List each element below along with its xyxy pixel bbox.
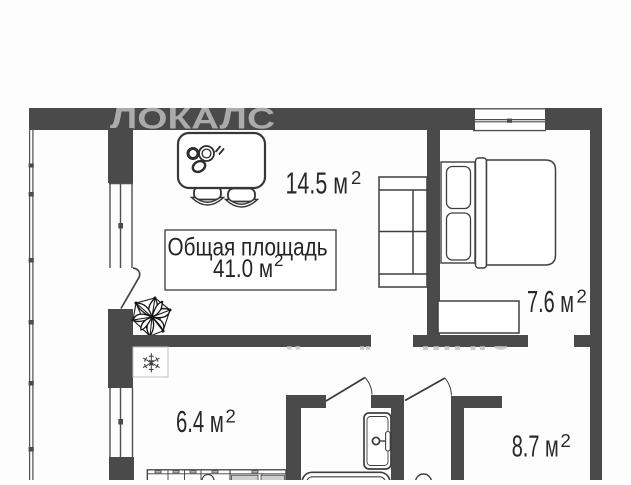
svg-text:14.5 м: 14.5 м xyxy=(286,166,349,201)
svg-text:7.6 м: 7.6 м xyxy=(527,284,574,319)
svg-text:ЛОКАЛС: ЛОКАЛС xyxy=(110,103,275,136)
svg-text:2: 2 xyxy=(226,406,236,427)
svg-text:41.0 м: 41.0 м xyxy=(213,255,273,283)
svg-text:6.4 м: 6.4 м xyxy=(176,404,224,439)
svg-text:2: 2 xyxy=(351,167,361,188)
svg-text:2: 2 xyxy=(561,430,571,451)
svg-text:2: 2 xyxy=(274,251,283,270)
svg-text:8.7 м: 8.7 м xyxy=(512,429,559,464)
svg-text:2: 2 xyxy=(577,286,587,307)
